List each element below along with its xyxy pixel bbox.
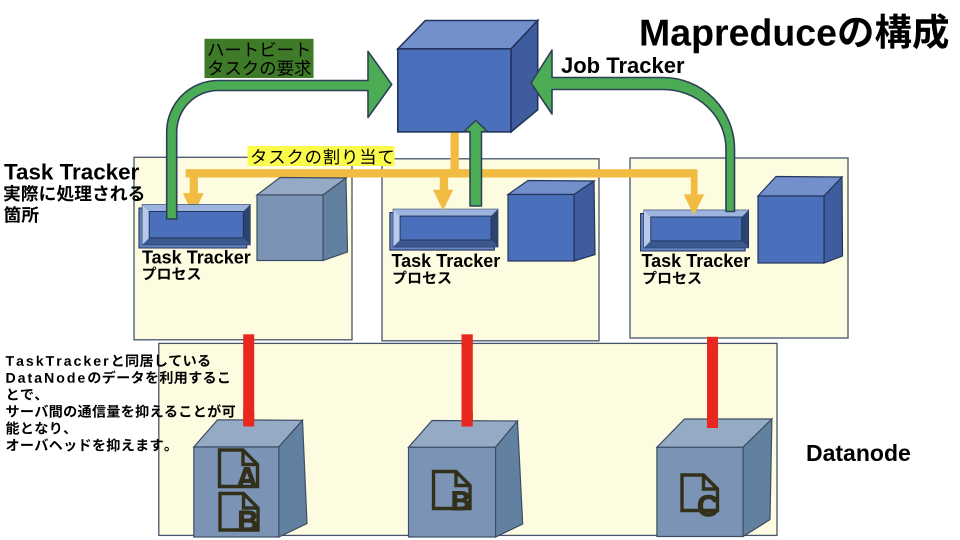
- svg-text:B: B: [238, 506, 259, 538]
- svg-text:A: A: [237, 463, 258, 495]
- svg-text:C: C: [697, 490, 719, 523]
- svg-text:Datanode: Datanode: [806, 440, 911, 466]
- svg-text:Task Tracker: Task Tracker: [642, 251, 751, 271]
- svg-text:B: B: [451, 486, 471, 516]
- svg-text:Task Tracker: Task Tracker: [4, 160, 140, 185]
- svg-text:Job Tracker: Job Tracker: [561, 53, 685, 78]
- svg-text:Task Tracker: Task Tracker: [392, 251, 501, 271]
- svg-text:Task Tracker: Task Tracker: [142, 247, 251, 267]
